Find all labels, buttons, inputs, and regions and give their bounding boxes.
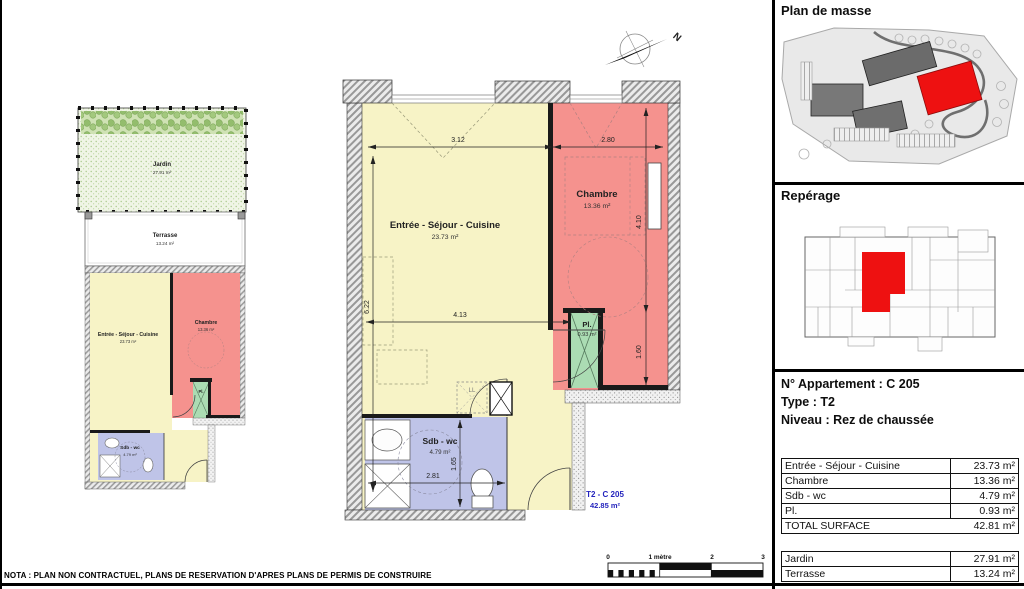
sdb-area: 4.79 m² — [430, 449, 451, 456]
total-value: 42.81 m² — [951, 519, 1018, 533]
surface-table: Entrée - Séjour - Cuisine 23.73 m² Chamb… — [781, 458, 1019, 534]
jardin-area: Jardin 27.91 m² — [78, 108, 246, 212]
small-chambre-label: Chambre — [195, 320, 218, 326]
hedge — [81, 111, 243, 134]
row-label: Jardin — [782, 552, 951, 566]
small-sejour-label: Entrée - Séjour - Cuisine — [98, 332, 158, 338]
sejour-label: Entrée - Séjour - Cuisine — [390, 220, 500, 231]
sejour-area: 23.73 m² — [432, 234, 460, 241]
row-label: Sdb - wc — [782, 489, 951, 503]
north-letter: N — [671, 31, 684, 44]
row-label: Entrée - Séjour - Cuisine — [782, 459, 951, 473]
row-label: Terrasse — [782, 567, 951, 581]
garden-unit-plan: Jardin 27.91 m² Terrasse 13.24 m² — [60, 95, 260, 495]
row-value: 0.93 m² — [951, 504, 1018, 518]
dim-6-22: 6.22 — [364, 300, 371, 314]
dim-1-65: 1.65 — [451, 457, 458, 471]
sheet-left-border — [0, 0, 2, 589]
table-row: Chambre 13.36 m² — [782, 473, 1018, 488]
reperage-plan — [790, 212, 1010, 364]
dim-1-60: 1.60 — [636, 345, 643, 359]
terrasse-label: Terrasse — [153, 233, 178, 239]
sidebar-border — [772, 0, 775, 589]
table-row: Sdb - wc 4.79 m² — [782, 488, 1018, 503]
row-value: 4.79 m² — [951, 489, 1018, 503]
terrasse-area-label: 13.24 m² — [156, 241, 175, 246]
small-apartment: Entrée - Séjour - Cuisine 23.73 m² Chamb… — [85, 266, 245, 489]
small-chambre-area: 13.36 m² — [198, 327, 215, 332]
row-label: Pl. — [782, 504, 951, 518]
jardin-label: Jardin — [153, 162, 171, 168]
toilet — [471, 469, 493, 499]
sdb-label: Sdb - wc — [423, 436, 458, 446]
exterior-table: Jardin 27.91 m² Terrasse 13.24 m² — [781, 551, 1019, 582]
row-value: 13.36 m² — [951, 474, 1018, 488]
nota-text: NOTA : PLAN NON CONTRACTUEL, PLANS DE RE… — [4, 571, 432, 580]
wardrobe — [648, 163, 661, 229]
plan-de-masse-title: Plan de masse — [781, 3, 871, 18]
dim-4-13: 4.13 — [453, 312, 467, 319]
apartment-number: N° Appartement : C 205 — [781, 377, 920, 391]
small-sdb-label: Sdb - wc — [120, 445, 140, 451]
table-total-row: TOTAL SURFACE 42.81 m² — [782, 518, 1018, 533]
unit-label-line1: T2 - C 205 — [586, 490, 624, 499]
row-value: 13.24 m² — [951, 567, 1018, 581]
chambre-area: 13.36 m² — [584, 203, 612, 210]
sidebar-divider-2 — [772, 369, 1024, 372]
row-label: Chambre — [782, 474, 951, 488]
north-arrow-pointer — [605, 39, 667, 65]
small-sejour — [90, 273, 172, 430]
plan-sheet: Jardin 27.91 m² Terrasse 13.24 m² — [0, 0, 1024, 589]
small-sejour-area: 23.73 m² — [120, 339, 137, 344]
scale-0: 0 — [606, 554, 610, 561]
terrasse-area: Terrasse 13.24 m² — [85, 212, 245, 266]
jardin-area-label: 27.91 m² — [153, 170, 172, 175]
chambre-label: Chambre — [576, 189, 617, 200]
pl-label: Pl. — [582, 320, 591, 329]
scale-bar: 0 1 mètre 2 3 — [603, 550, 771, 586]
table-row: Terrasse 13.24 m² — [782, 566, 1018, 581]
small-sdb-area: 4.79 m² — [123, 452, 137, 457]
sheet-bottom-border — [0, 583, 1024, 586]
unit-label-line2: 42.85 m² — [590, 501, 621, 510]
small-pl-label: Pl. — [198, 389, 203, 394]
sidebar-divider-1 — [772, 182, 1024, 185]
main-floor-plan: LL 3.12 2.80 6.22 — [330, 72, 710, 550]
scale-3: 3 — [761, 554, 765, 561]
table-row: Jardin 27.91 m² — [782, 552, 1018, 566]
table-row: Entrée - Séjour - Cuisine 23.73 m² — [782, 459, 1018, 473]
reperage-title: Repérage — [781, 188, 840, 203]
total-label: TOTAL SURFACE — [782, 519, 951, 533]
dim-2-80: 2.80 — [601, 137, 615, 144]
pl-area: 0.93 m² — [578, 332, 597, 338]
scale-2: 2 — [710, 554, 714, 561]
table-row: Pl. 0.93 m² — [782, 503, 1018, 518]
apartment-type: Type : T2 — [781, 395, 835, 409]
dim-3-12: 3.12 — [451, 137, 465, 144]
row-value: 23.73 m² — [951, 459, 1018, 473]
site-plan — [779, 24, 1022, 180]
washer-label: LL — [469, 388, 476, 394]
apartment-level: Niveau : Rez de chaussée — [781, 413, 934, 427]
dim-4-10: 4.10 — [636, 215, 643, 229]
dim-2-81: 2.81 — [426, 473, 440, 480]
scale-1m: 1 mètre — [648, 554, 672, 561]
north-arrow: N — [595, 18, 690, 73]
row-value: 27.91 m² — [951, 552, 1018, 566]
